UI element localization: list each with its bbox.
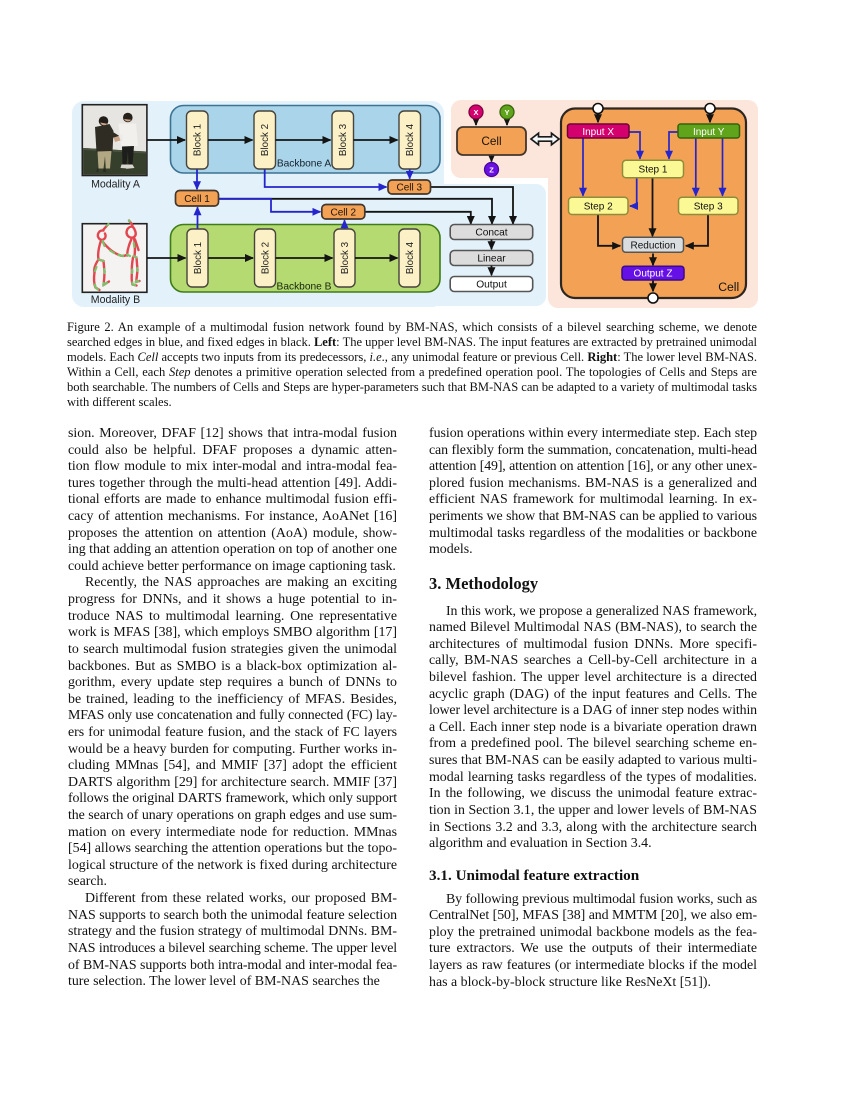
svg-text:Concat: Concat bbox=[475, 228, 507, 239]
svg-text:Cell: Cell bbox=[718, 280, 739, 294]
svg-text:Step 1: Step 1 bbox=[639, 165, 668, 176]
svg-text:Block 1: Block 1 bbox=[193, 242, 204, 274]
svg-text:Input X: Input X bbox=[582, 127, 614, 138]
svg-text:Output Z: Output Z bbox=[634, 269, 673, 280]
svg-text:X: X bbox=[473, 108, 478, 117]
svg-text:Output: Output bbox=[476, 280, 507, 291]
svg-text:Block 3: Block 3 bbox=[340, 241, 351, 274]
svg-text:Modality B: Modality B bbox=[91, 294, 140, 306]
svg-text:Cell 2: Cell 2 bbox=[331, 207, 357, 218]
svg-text:Step 3: Step 3 bbox=[694, 201, 723, 212]
svg-text:Block 3: Block 3 bbox=[338, 123, 349, 156]
svg-text:Linear: Linear bbox=[477, 254, 506, 265]
svg-text:Backbone A: Backbone A bbox=[277, 159, 332, 170]
svg-text:Cell 1: Cell 1 bbox=[184, 194, 210, 205]
svg-text:Modality A: Modality A bbox=[91, 179, 141, 191]
svg-text:Block 4: Block 4 bbox=[405, 123, 416, 156]
svg-text:Block 1: Block 1 bbox=[193, 124, 204, 156]
svg-text:Cell 3: Cell 3 bbox=[397, 183, 423, 194]
svg-text:Input Y: Input Y bbox=[693, 127, 725, 138]
svg-text:Block 4: Block 4 bbox=[405, 241, 416, 274]
svg-text:Block 2: Block 2 bbox=[260, 124, 271, 156]
svg-text:Block 2: Block 2 bbox=[260, 242, 271, 274]
svg-text:Y: Y bbox=[504, 108, 509, 117]
svg-text:Step 2: Step 2 bbox=[584, 201, 613, 212]
svg-text:Reduction: Reduction bbox=[630, 240, 675, 251]
svg-text:Backbone B: Backbone B bbox=[277, 282, 332, 293]
svg-text:Cell: Cell bbox=[481, 134, 501, 148]
svg-text:Z: Z bbox=[489, 165, 494, 174]
